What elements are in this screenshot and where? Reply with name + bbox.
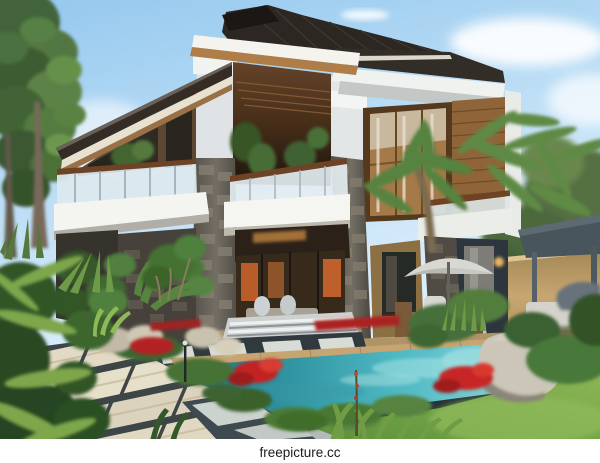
- svg-text:freepicture.cc: freepicture.cc: [259, 445, 340, 460]
